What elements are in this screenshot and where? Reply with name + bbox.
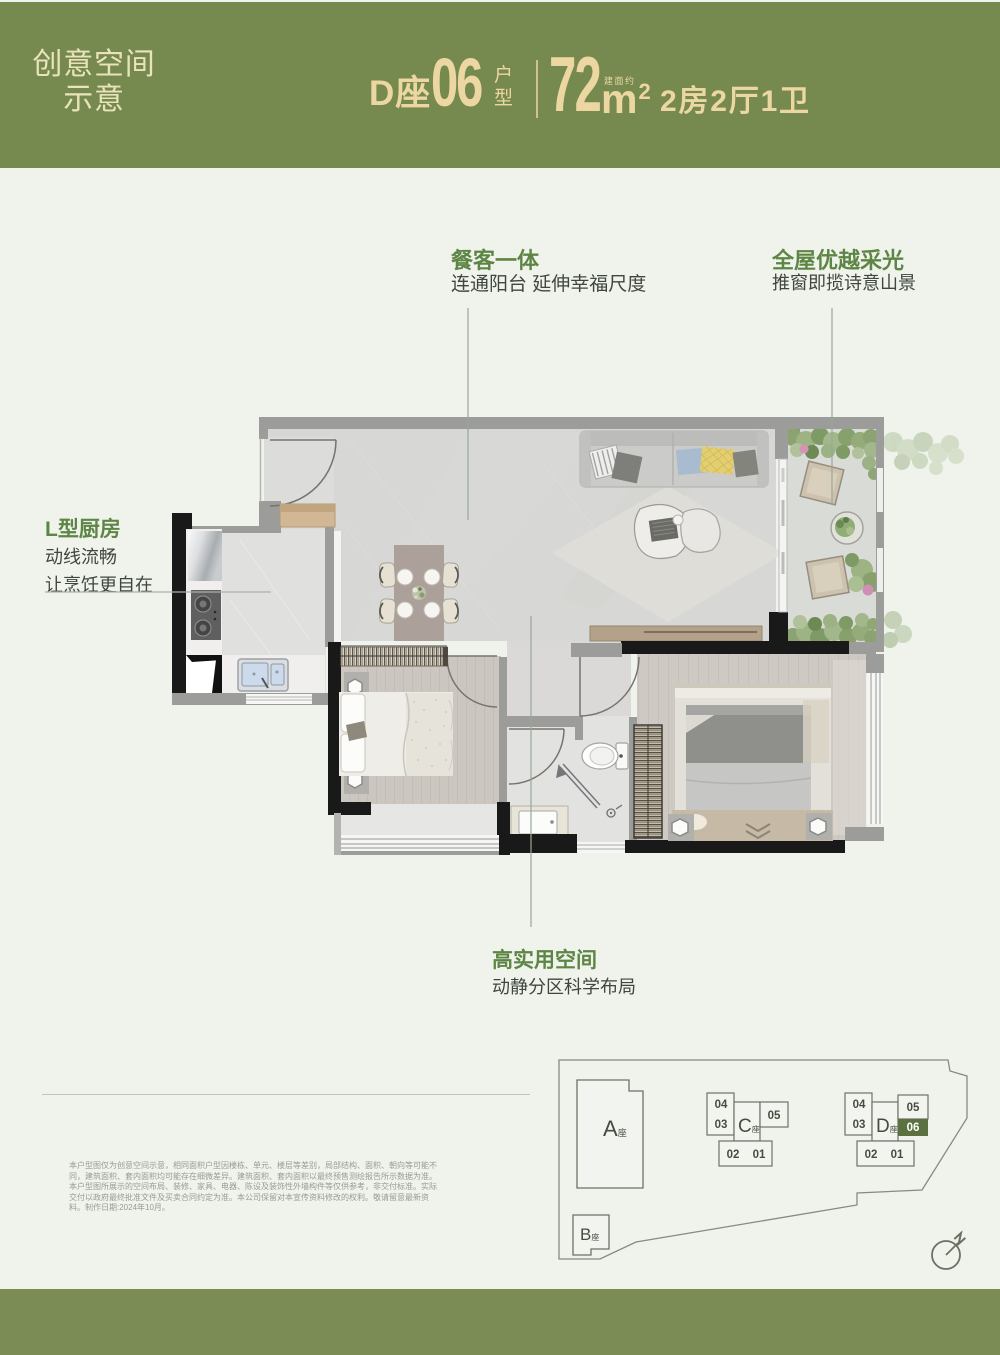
svg-text:04: 04 <box>853 1099 866 1111</box>
svg-text:02: 02 <box>865 1149 878 1161</box>
svg-text:06: 06 <box>907 1122 920 1134</box>
svg-text:01: 01 <box>753 1149 766 1161</box>
svg-text:04: 04 <box>715 1099 728 1111</box>
svg-text:02: 02 <box>727 1149 740 1161</box>
svg-text:03: 03 <box>853 1119 866 1131</box>
svg-text:01: 01 <box>891 1149 904 1161</box>
svg-text:05: 05 <box>907 1102 920 1114</box>
svg-text:03: 03 <box>715 1119 728 1131</box>
svg-text:05: 05 <box>768 1110 781 1122</box>
